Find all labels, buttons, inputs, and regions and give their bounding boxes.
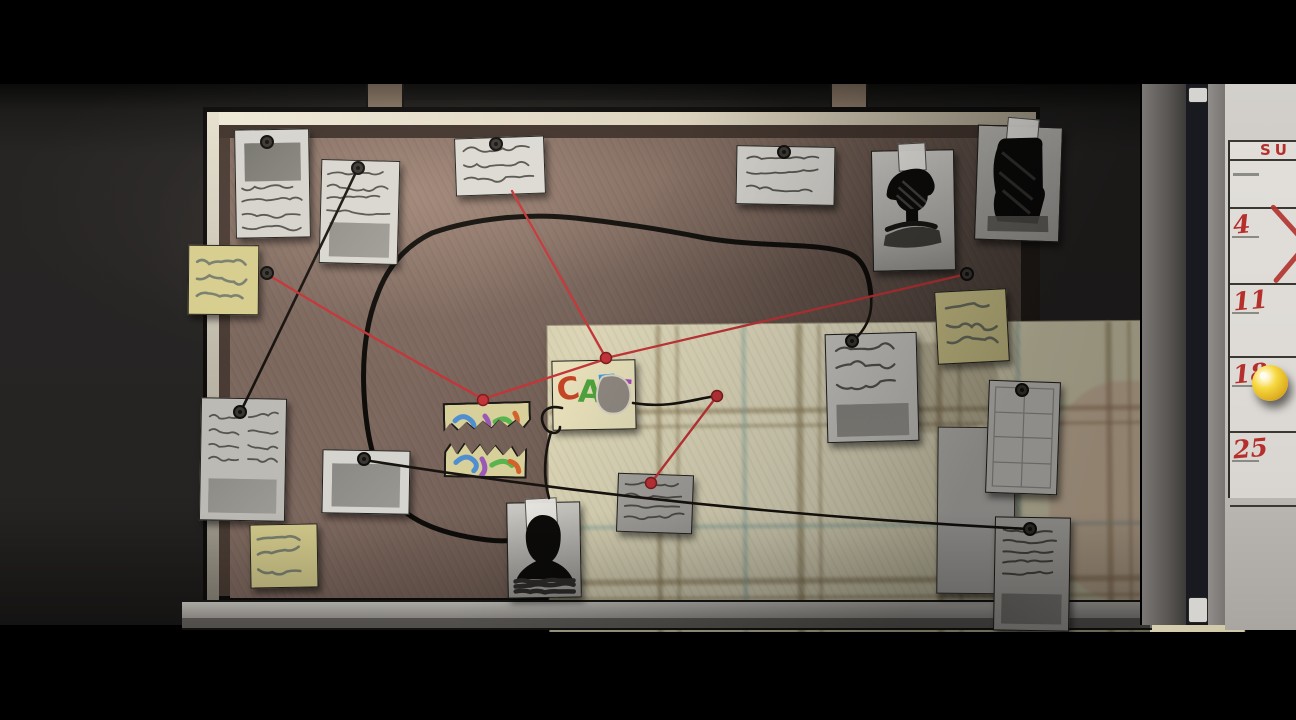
pinned-note-top-left-1[interactable] — [234, 128, 311, 238]
scribble-line — [836, 343, 894, 351]
scribble-line — [242, 197, 302, 201]
scribble-line — [464, 162, 529, 168]
silhouette-figure — [992, 136, 1047, 224]
letterbox-bottom — [0, 632, 1296, 720]
scribble-line — [243, 213, 300, 219]
torn-colorful-strip-bottom[interactable] — [444, 438, 528, 478]
letterbox-top — [0, 0, 1296, 84]
scribble-line — [1003, 560, 1052, 563]
scribble-line — [463, 145, 529, 152]
scribble-line — [625, 493, 681, 499]
door-jamb — [1140, 84, 1188, 625]
scribble-line — [248, 445, 277, 449]
pinned-note-left[interactable] — [199, 397, 287, 521]
scribble-line — [197, 260, 245, 265]
scribble-line — [209, 444, 238, 448]
suspect-photo-figure[interactable] — [974, 125, 1063, 243]
scribble-line — [197, 293, 243, 298]
scribble-line — [197, 275, 246, 284]
door-hinge-top — [1188, 87, 1208, 103]
date-underline — [1232, 312, 1259, 314]
wall-calendar[interactable]: SU 4111825 — [1228, 140, 1296, 498]
sticky-note-left-bottom[interactable] — [249, 523, 318, 588]
silhouette-head — [515, 515, 572, 580]
color-scribble — [455, 416, 474, 428]
color-scribble — [456, 457, 477, 471]
pinned-note-top-center[interactable] — [454, 135, 546, 196]
scribble-line — [327, 195, 379, 200]
pinned-note-top-right[interactable] — [735, 145, 835, 206]
evidence-layer: CAFE — [0, 0, 1296, 720]
color-scribble — [485, 416, 489, 430]
scribble-line — [249, 412, 278, 418]
torn-hole — [597, 375, 631, 414]
calendar-dash — [1233, 173, 1259, 176]
cafe-note[interactable]: CAFE — [551, 359, 636, 430]
scribble-line — [258, 569, 300, 575]
calendar-row: 11 — [1230, 285, 1296, 358]
sticky-note-right[interactable] — [934, 288, 1010, 365]
torn-paper — [445, 403, 530, 435]
red-x-mark — [1270, 204, 1296, 259]
grid-paper[interactable] — [985, 380, 1061, 495]
pinned-note-bottom-right[interactable] — [993, 516, 1071, 631]
door-inner-edge — [1208, 84, 1225, 625]
scribble-line — [248, 458, 277, 462]
torn-paper — [446, 440, 526, 476]
pinned-note-top-left-2[interactable] — [319, 159, 401, 265]
scribble-line — [747, 156, 818, 160]
scribble-line — [626, 482, 678, 487]
game-scene: CAFE SU 4111825 — [0, 0, 1296, 720]
scribble-line — [624, 512, 683, 521]
grid-lines — [992, 387, 1053, 488]
polaroid-photo[interactable] — [321, 449, 410, 515]
scribble-line — [464, 175, 533, 183]
door-hinge-bottom — [1188, 597, 1208, 623]
date-underline — [1232, 460, 1259, 462]
calendar-header: SU — [1230, 142, 1296, 161]
suspect-photo-hat[interactable] — [871, 149, 956, 271]
scribble-line — [210, 415, 239, 419]
scribble-line — [747, 168, 818, 175]
scribble-line — [258, 536, 300, 540]
scribble-line — [243, 225, 301, 231]
scribble-line — [328, 184, 388, 191]
scribble-line — [328, 171, 383, 176]
silhouette-photo[interactable] — [506, 501, 582, 598]
calendar-row — [1230, 161, 1296, 209]
sticky-note-left-top[interactable] — [188, 245, 260, 316]
red-x-mark — [1273, 227, 1296, 284]
scribble-line — [836, 360, 894, 369]
date-underline — [1232, 236, 1259, 238]
scribble-line — [946, 303, 989, 309]
scribble-line — [625, 505, 679, 509]
color-scribble — [495, 419, 511, 424]
scribble-line — [747, 186, 812, 192]
scribble-line — [1004, 530, 1052, 534]
scribble-line — [948, 335, 998, 344]
torn-colorful-strip-top[interactable] — [443, 401, 532, 437]
scribble-line — [258, 547, 299, 555]
scribble-line — [1003, 571, 1052, 575]
calendar-row: 25 — [1230, 433, 1296, 507]
scribble-line — [837, 380, 895, 390]
scribble-line — [209, 429, 238, 435]
scribble-line — [1003, 551, 1052, 554]
pinned-note-right[interactable] — [825, 332, 920, 443]
color-scribble — [515, 413, 518, 425]
scribble-line — [327, 210, 390, 215]
calendar-row: 18 — [1230, 358, 1296, 433]
door-edge — [1186, 84, 1208, 625]
scribble-line — [242, 185, 292, 191]
scribble-line — [248, 430, 277, 434]
pinned-note-bottom-small[interactable] — [616, 473, 694, 535]
scribble-line — [1004, 540, 1056, 544]
scribble-line — [947, 322, 997, 332]
scribble-line — [209, 457, 238, 461]
calendar-row: 4 — [1230, 209, 1296, 285]
color-scribble — [482, 459, 485, 475]
yellow-pushpin[interactable] — [1252, 365, 1288, 401]
